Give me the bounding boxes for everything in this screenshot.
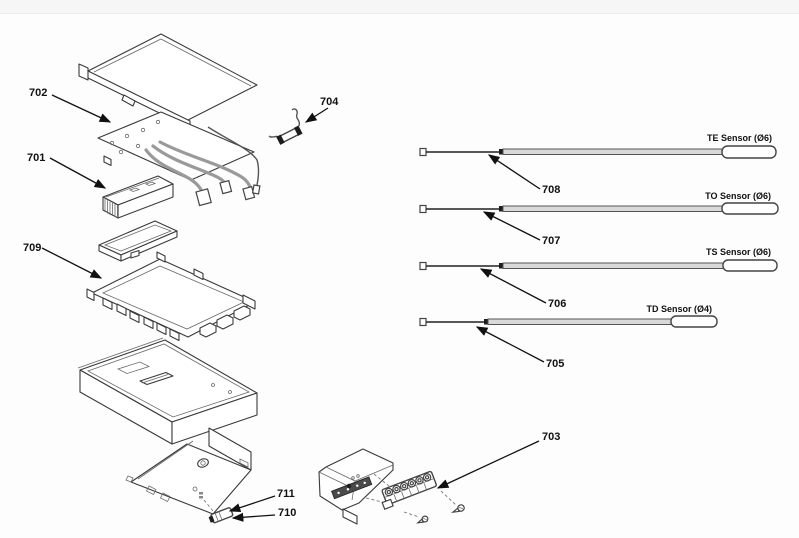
callout-710: 710 <box>278 507 296 519</box>
sensor-labels: TE Sensor (Ø6) TO Sensor (Ø6) TS Sensor … <box>646 133 772 314</box>
callout-706: 706 <box>548 298 566 310</box>
callout-708: 708 <box>542 184 560 196</box>
leader-703 <box>438 441 539 488</box>
sensor-ts <box>420 260 777 271</box>
callout-709: 709 <box>23 242 41 254</box>
leader-704 <box>306 108 328 122</box>
leader-710 <box>233 515 275 518</box>
part-housing-box <box>78 338 257 444</box>
part-709-frame <box>87 252 255 341</box>
leader-708 <box>489 155 540 189</box>
part-701-heater-block <box>103 176 173 218</box>
part-bottom-cover <box>126 428 251 514</box>
part-drip-tray <box>99 221 177 261</box>
leader-707 <box>484 212 540 240</box>
leader-701 <box>50 158 105 188</box>
sensor-to <box>420 203 778 214</box>
te-sensor-label: TE Sensor (Ø6) <box>707 133 772 143</box>
part-703-bracket <box>319 449 393 524</box>
callout-701: 701 <box>27 152 45 164</box>
callout-711: 711 <box>277 488 295 500</box>
callout-705: 705 <box>546 358 564 370</box>
callout-707: 707 <box>542 235 560 247</box>
leader-702 <box>52 95 110 122</box>
leader-705 <box>477 327 544 362</box>
exploded-parts-diagram: 702 701 709 704 708 707 706 705 703 711 … <box>0 0 799 538</box>
ts-sensor-label: TS Sensor (Ø6) <box>706 247 771 257</box>
part-top-cover <box>79 34 257 128</box>
callout-704: 704 <box>320 96 339 108</box>
callout-703: 703 <box>542 431 560 443</box>
leader-709 <box>42 248 101 278</box>
td-sensor-label: TD Sensor (Ø4) <box>646 304 712 314</box>
part-704-thermal-fuse <box>269 109 303 145</box>
leader-711 <box>230 496 275 511</box>
leader-706 <box>481 269 546 303</box>
callout-702: 702 <box>29 87 47 99</box>
sensor-te <box>420 146 776 158</box>
sensor-td <box>420 316 717 327</box>
mounting-screw <box>451 504 465 514</box>
diagram-canvas: 702 701 709 704 708 707 706 705 703 711 … <box>0 0 799 538</box>
mounting-screw <box>416 515 428 524</box>
to-sensor-label: TO Sensor (Ø6) <box>705 191 771 201</box>
